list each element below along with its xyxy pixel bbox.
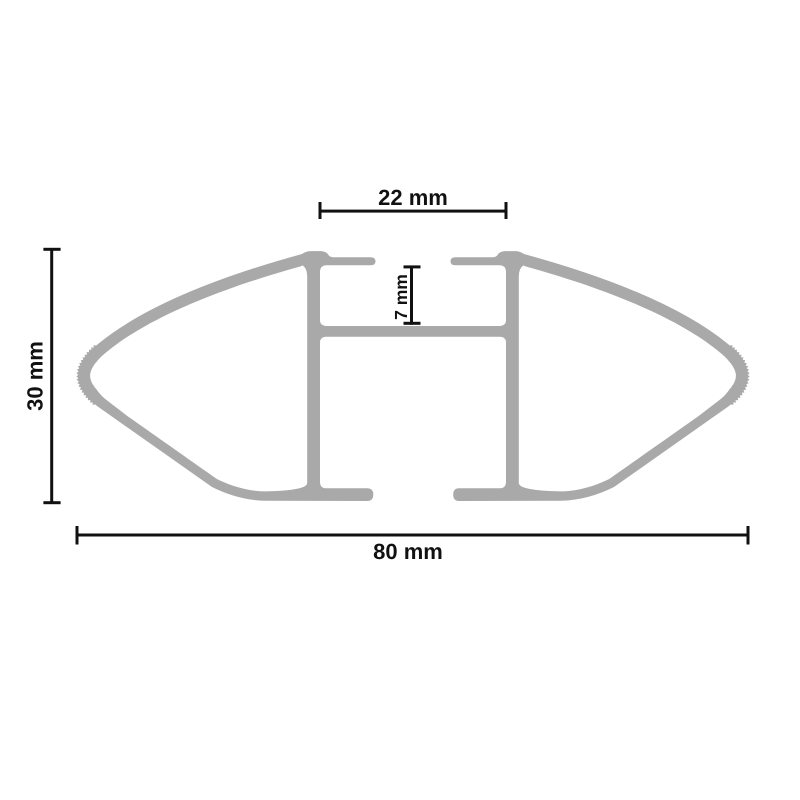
svg-text:80 mm: 80 mm <box>373 539 443 564</box>
svg-text:22 mm: 22 mm <box>378 185 448 210</box>
svg-text:30 mm: 30 mm <box>23 341 48 411</box>
svg-text:7 mm: 7 mm <box>391 274 411 320</box>
